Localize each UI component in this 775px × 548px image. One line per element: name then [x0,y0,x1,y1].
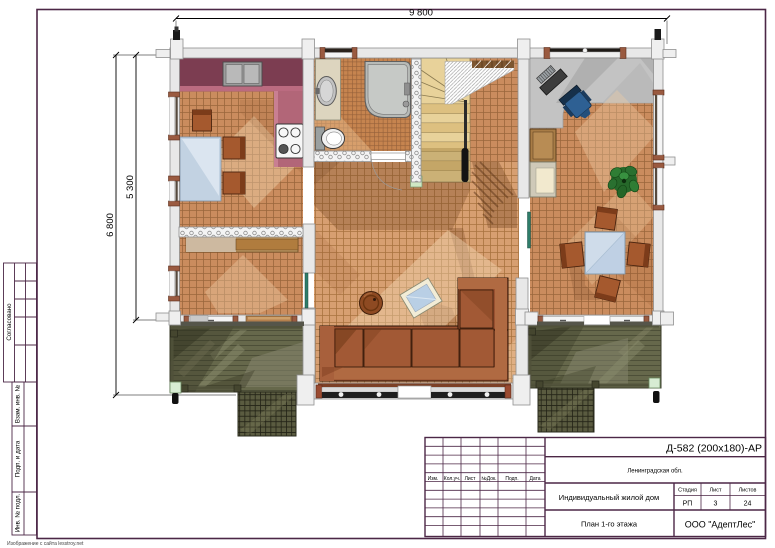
svg-text:Подп.: Подп. [505,476,518,482]
svg-text:Кол.уч.: Кол.уч. [444,476,460,482]
svg-text:6 800: 6 800 [105,213,116,237]
svg-text:РП: РП [683,501,693,508]
svg-text:ООО "АдептЛес": ООО "АдептЛес" [685,520,756,530]
svg-text:№Док.: №Док. [481,476,496,482]
svg-text:24: 24 [744,501,752,508]
svg-text:9 800: 9 800 [409,8,433,19]
svg-text:5 300: 5 300 [125,175,136,199]
svg-text:Дата: Дата [529,476,540,482]
svg-text:Инв. № подл.: Инв. № подл. [15,493,22,532]
svg-text:Изм.: Изм. [428,476,439,482]
svg-text:Лист: Лист [710,488,722,494]
svg-text:Ленинградская обл.: Ленинградская обл. [627,469,683,475]
svg-text:Листов: Листов [739,488,757,494]
svg-text:Согласовано: Согласовано [6,303,13,341]
svg-text:Д-582 (200х180)-АР: Д-582 (200х180)-АР [666,443,762,455]
svg-text:План 1-го этажа: План 1-го этажа [581,520,638,529]
svg-text:Лист: Лист [465,476,477,482]
svg-text:3: 3 [714,501,718,508]
svg-text:Подп. и дата: Подп. и дата [15,440,22,477]
svg-text:Изображение с сайта lesstroy.n: Изображение с сайта lesstroy.net [7,540,84,547]
svg-text:Индивидуальный жилой дом: Индивидуальный жилой дом [559,493,659,502]
svg-text:Взам. инв. №: Взам. инв. № [15,384,22,423]
svg-text:Стадия: Стадия [678,488,697,494]
